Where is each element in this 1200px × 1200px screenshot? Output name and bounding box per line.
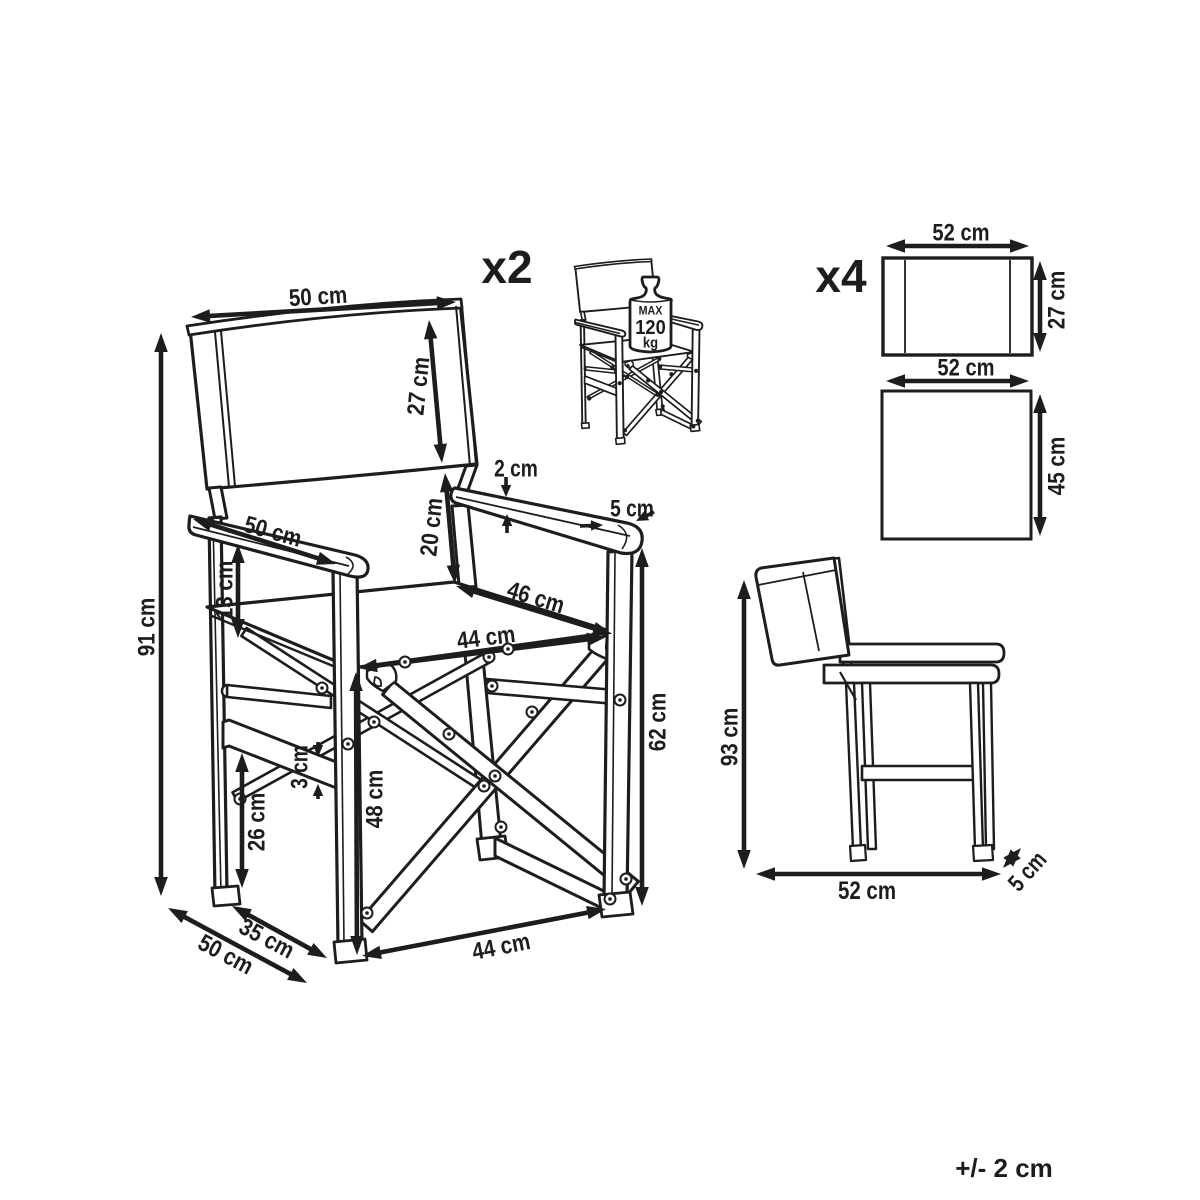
svg-text:x4: x4 — [815, 250, 867, 302]
svg-text:93 cm: 93 cm — [716, 708, 743, 767]
svg-text:5 cm: 5 cm — [610, 494, 654, 522]
svg-text:kg: kg — [643, 335, 658, 351]
svg-text:52 cm: 52 cm — [838, 876, 896, 904]
svg-text:26 cm: 26 cm — [243, 793, 270, 852]
svg-text:27 cm: 27 cm — [1043, 271, 1070, 330]
svg-text:52 cm: 52 cm — [937, 354, 994, 381]
svg-text:x2: x2 — [481, 241, 532, 293]
svg-text:45 cm: 45 cm — [1043, 437, 1070, 496]
svg-text:3 cm: 3 cm — [285, 745, 313, 789]
svg-text:52 cm: 52 cm — [932, 219, 989, 246]
svg-text:91 cm: 91 cm — [133, 598, 160, 657]
svg-text:50 cm: 50 cm — [288, 281, 348, 311]
svg-text:+/- 2 cm: +/- 2 cm — [955, 1153, 1053, 1183]
svg-text:62 cm: 62 cm — [644, 693, 671, 752]
svg-text:13 cm: 13 cm — [211, 561, 238, 620]
svg-text:48 cm: 48 cm — [361, 770, 388, 829]
svg-text:2 cm: 2 cm — [494, 454, 538, 482]
